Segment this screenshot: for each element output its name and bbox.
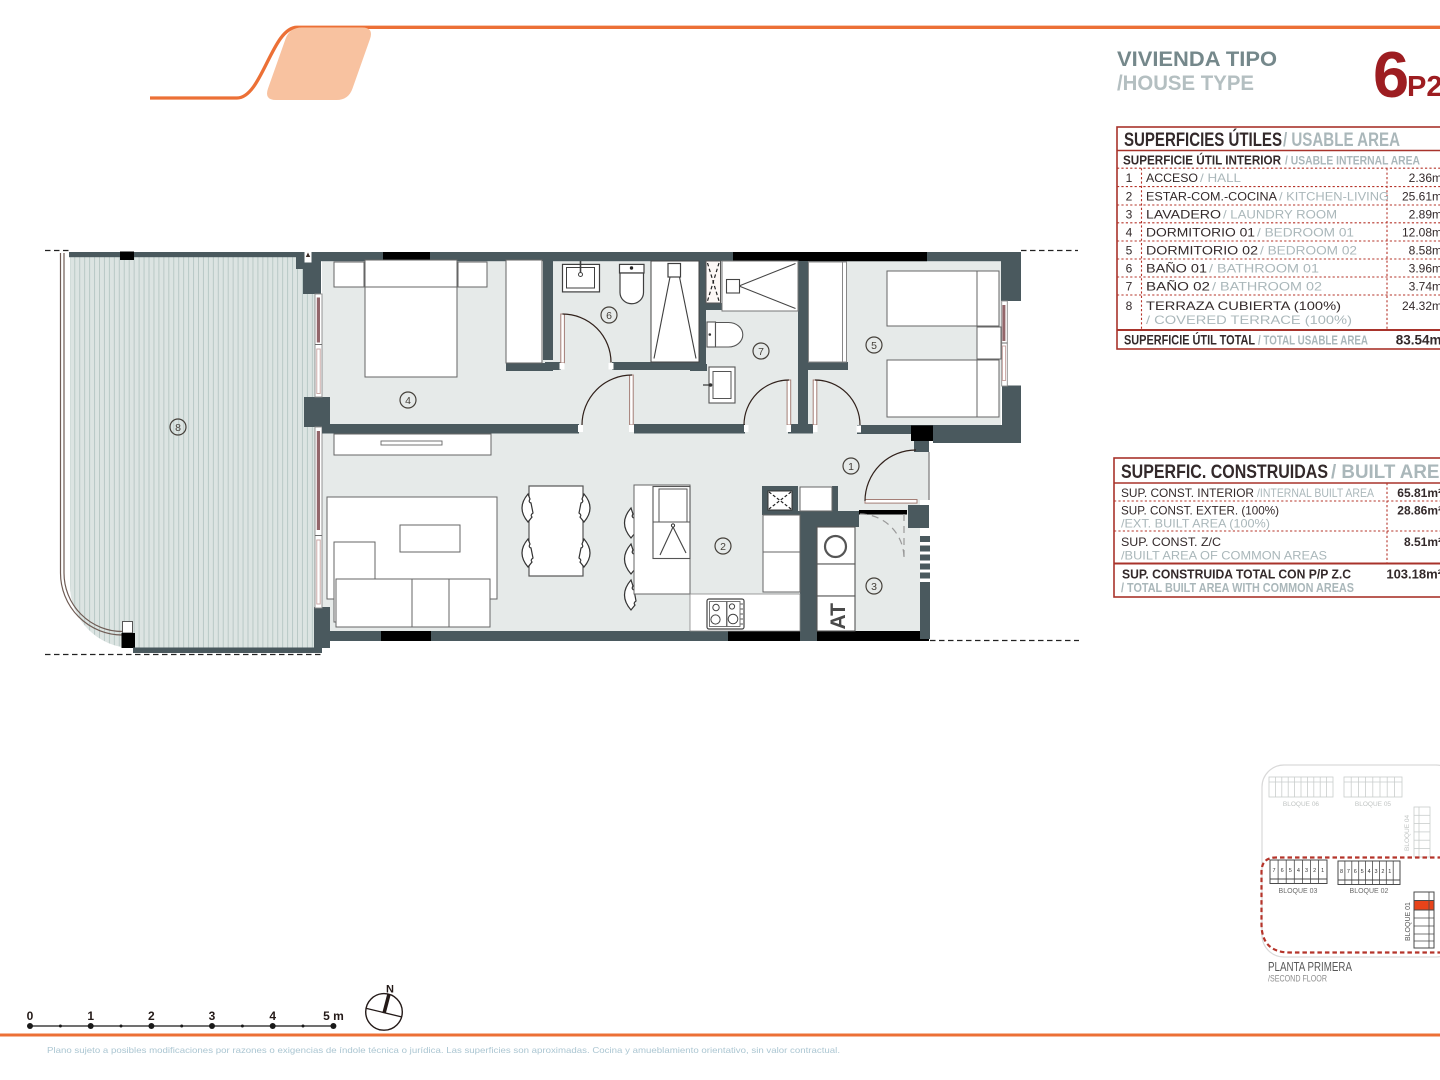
svg-text:/ TOTAL BUILT AREA WITH COMMON: / TOTAL BUILT AREA WITH COMMON AREAS: [1121, 581, 1354, 595]
svg-text:DORMITORIO 01: DORMITORIO 01: [1146, 226, 1255, 240]
svg-text:5: 5: [871, 340, 877, 352]
svg-text:2: 2: [1313, 868, 1316, 874]
svg-text:SUP. CONST. EXTER. (100%): SUP. CONST. EXTER. (100%): [1121, 504, 1279, 518]
svg-text:4: 4: [1297, 868, 1300, 874]
svg-text:7: 7: [1347, 869, 1350, 875]
svg-text:6: 6: [606, 310, 612, 322]
svg-text:3: 3: [1126, 208, 1133, 222]
svg-text:7: 7: [758, 346, 764, 358]
svg-text:8: 8: [175, 422, 181, 434]
svg-text:P2: P2: [1407, 71, 1440, 103]
svg-text:3: 3: [1374, 869, 1377, 875]
svg-text:BLOQUE 06: BLOQUE 06: [1283, 801, 1320, 808]
svg-text:Plano sujeto a posibles modifi: Plano sujeto a posibles modificaciones p…: [47, 1045, 840, 1055]
svg-text:25.61m²: 25.61m²: [1402, 190, 1440, 204]
svg-text:BLOQUE 05: BLOQUE 05: [1355, 801, 1392, 808]
svg-text:4: 4: [1126, 226, 1133, 240]
svg-text:/ BUILT AREA: / BUILT AREA: [1331, 462, 1440, 483]
svg-text:1: 1: [87, 1009, 94, 1023]
svg-text:103.18m²: 103.18m²: [1386, 567, 1440, 582]
svg-text:5: 5: [1126, 244, 1133, 258]
svg-text:4: 4: [405, 395, 411, 407]
svg-text:/ TOTAL USABLE AREA: / TOTAL USABLE AREA: [1258, 334, 1368, 348]
svg-text:8.58m²: 8.58m²: [1409, 244, 1440, 258]
svg-text:/EXT. BUILT AREA (100%): /EXT. BUILT AREA (100%): [1121, 517, 1270, 531]
svg-text:2.36m²: 2.36m²: [1409, 171, 1440, 185]
svg-text:3.74m²: 3.74m²: [1409, 280, 1440, 294]
svg-text:2.89m²: 2.89m²: [1409, 208, 1440, 222]
svg-text:83.54m²: 83.54m²: [1396, 333, 1440, 348]
svg-text:2: 2: [1126, 190, 1133, 204]
svg-text:/ HALL: / HALL: [1200, 171, 1241, 185]
svg-text:/HOUSE TYPE: /HOUSE TYPE: [1117, 72, 1254, 95]
svg-text:/BUILT AREA OF COMMON AREAS: /BUILT AREA OF COMMON AREAS: [1121, 549, 1327, 563]
svg-text:/ KITCHEN-LIVING: / KITCHEN-LIVING: [1279, 190, 1389, 204]
svg-text:4: 4: [1368, 869, 1371, 875]
svg-text:8: 8: [1126, 299, 1133, 313]
svg-text:1: 1: [1388, 869, 1391, 875]
svg-text:AT: AT: [827, 603, 850, 630]
svg-text:24.32m²: 24.32m²: [1402, 299, 1440, 313]
svg-text:BLOQUE 02: BLOQUE 02: [1350, 888, 1389, 895]
svg-text:1: 1: [1126, 171, 1133, 185]
svg-text:5 m: 5 m: [323, 1009, 344, 1023]
svg-text:1: 1: [1321, 868, 1324, 874]
svg-text:12.08m²: 12.08m²: [1402, 226, 1440, 240]
svg-text:6: 6: [1281, 868, 1284, 874]
svg-text:8: 8: [1340, 869, 1343, 875]
svg-text:3: 3: [209, 1009, 216, 1023]
svg-text:/ COVERED TERRACE (100%): / COVERED TERRACE (100%): [1146, 313, 1352, 327]
svg-text:5: 5: [1361, 869, 1364, 875]
svg-text:/ BATHROOM 02: / BATHROOM 02: [1212, 280, 1322, 294]
svg-text:N: N: [386, 984, 394, 996]
svg-text:PLANTA PRIMERA: PLANTA PRIMERA: [1268, 960, 1353, 974]
svg-text:SUP. CONST. Z/C: SUP. CONST. Z/C: [1121, 535, 1221, 549]
svg-text:/ USABLE AREA: / USABLE AREA: [1283, 130, 1400, 151]
svg-text:TERRAZA CUBIERTA (100%): TERRAZA CUBIERTA (100%): [1146, 299, 1341, 313]
svg-text:SUPERFIC. CONSTRUIDAS: SUPERFIC. CONSTRUIDAS: [1121, 462, 1328, 483]
svg-text:BAÑO 01: BAÑO 01: [1146, 262, 1207, 276]
svg-text:/ BEDROOM 02: / BEDROOM 02: [1260, 244, 1357, 258]
svg-text:5: 5: [1289, 868, 1292, 874]
svg-text:2: 2: [720, 541, 726, 553]
svg-text:SUPERFICIES ÚTILES: SUPERFICIES ÚTILES: [1124, 129, 1282, 151]
svg-text:3: 3: [871, 581, 877, 593]
svg-text:SUPERFICIE ÚTIL INTERIOR: SUPERFICIE ÚTIL INTERIOR: [1123, 153, 1281, 168]
svg-text:7: 7: [1272, 868, 1275, 874]
svg-text:0: 0: [27, 1009, 34, 1023]
svg-text:/SECOND FLOOR: /SECOND FLOOR: [1268, 974, 1327, 984]
svg-text:ACCESO: ACCESO: [1146, 171, 1198, 185]
svg-text:3.96m²: 3.96m²: [1409, 262, 1440, 276]
svg-text:DORMITORIO 02: DORMITORIO 02: [1146, 244, 1258, 258]
svg-text:28.86m²: 28.86m²: [1397, 504, 1440, 518]
svg-text:/ USABLE INTERNAL AREA: / USABLE INTERNAL AREA: [1285, 156, 1420, 168]
svg-text:BLOQUE 03: BLOQUE 03: [1279, 888, 1318, 895]
svg-text:BLOQUE 01: BLOQUE 01: [1405, 902, 1412, 941]
svg-text:2: 2: [1381, 869, 1384, 875]
svg-text:/ LAUNDRY ROOM: / LAUNDRY ROOM: [1223, 208, 1337, 222]
svg-text:VIVIENDA TIPO: VIVIENDA TIPO: [1117, 48, 1277, 71]
svg-text:LAVADERO: LAVADERO: [1146, 208, 1221, 222]
svg-text:BAÑO 02: BAÑO 02: [1146, 280, 1210, 294]
svg-text:8.51m²: 8.51m²: [1404, 535, 1440, 549]
svg-text:ESTAR-COM.-COCINA: ESTAR-COM.-COCINA: [1146, 190, 1277, 204]
svg-text:7: 7: [1126, 280, 1133, 294]
svg-text:6: 6: [1354, 869, 1357, 875]
svg-text:3: 3: [1305, 868, 1308, 874]
svg-text:6: 6: [1373, 38, 1409, 111]
svg-text:6: 6: [1126, 262, 1133, 276]
svg-text:65.81m²: 65.81m²: [1397, 486, 1440, 500]
svg-text:SUP. CONSTRUIDA TOTAL CON P/P: SUP. CONSTRUIDA TOTAL CON P/P Z.C: [1122, 567, 1352, 582]
svg-text:BLOQUE 04: BLOQUE 04: [1404, 814, 1411, 851]
svg-text:1: 1: [848, 461, 854, 473]
svg-text:/INTERNAL BUILT AREA: /INTERNAL BUILT AREA: [1257, 486, 1374, 500]
svg-text:SUP. CONST. INTERIOR: SUP. CONST. INTERIOR: [1121, 486, 1254, 500]
svg-text:SUPERFICIE ÚTIL TOTAL: SUPERFICIE ÚTIL TOTAL: [1124, 333, 1255, 348]
svg-text:2: 2: [148, 1009, 155, 1023]
svg-text:/ BATHROOM 01: / BATHROOM 01: [1209, 262, 1319, 276]
svg-text:4: 4: [269, 1009, 276, 1023]
svg-text:/ BEDROOM 01: / BEDROOM 01: [1257, 226, 1354, 240]
